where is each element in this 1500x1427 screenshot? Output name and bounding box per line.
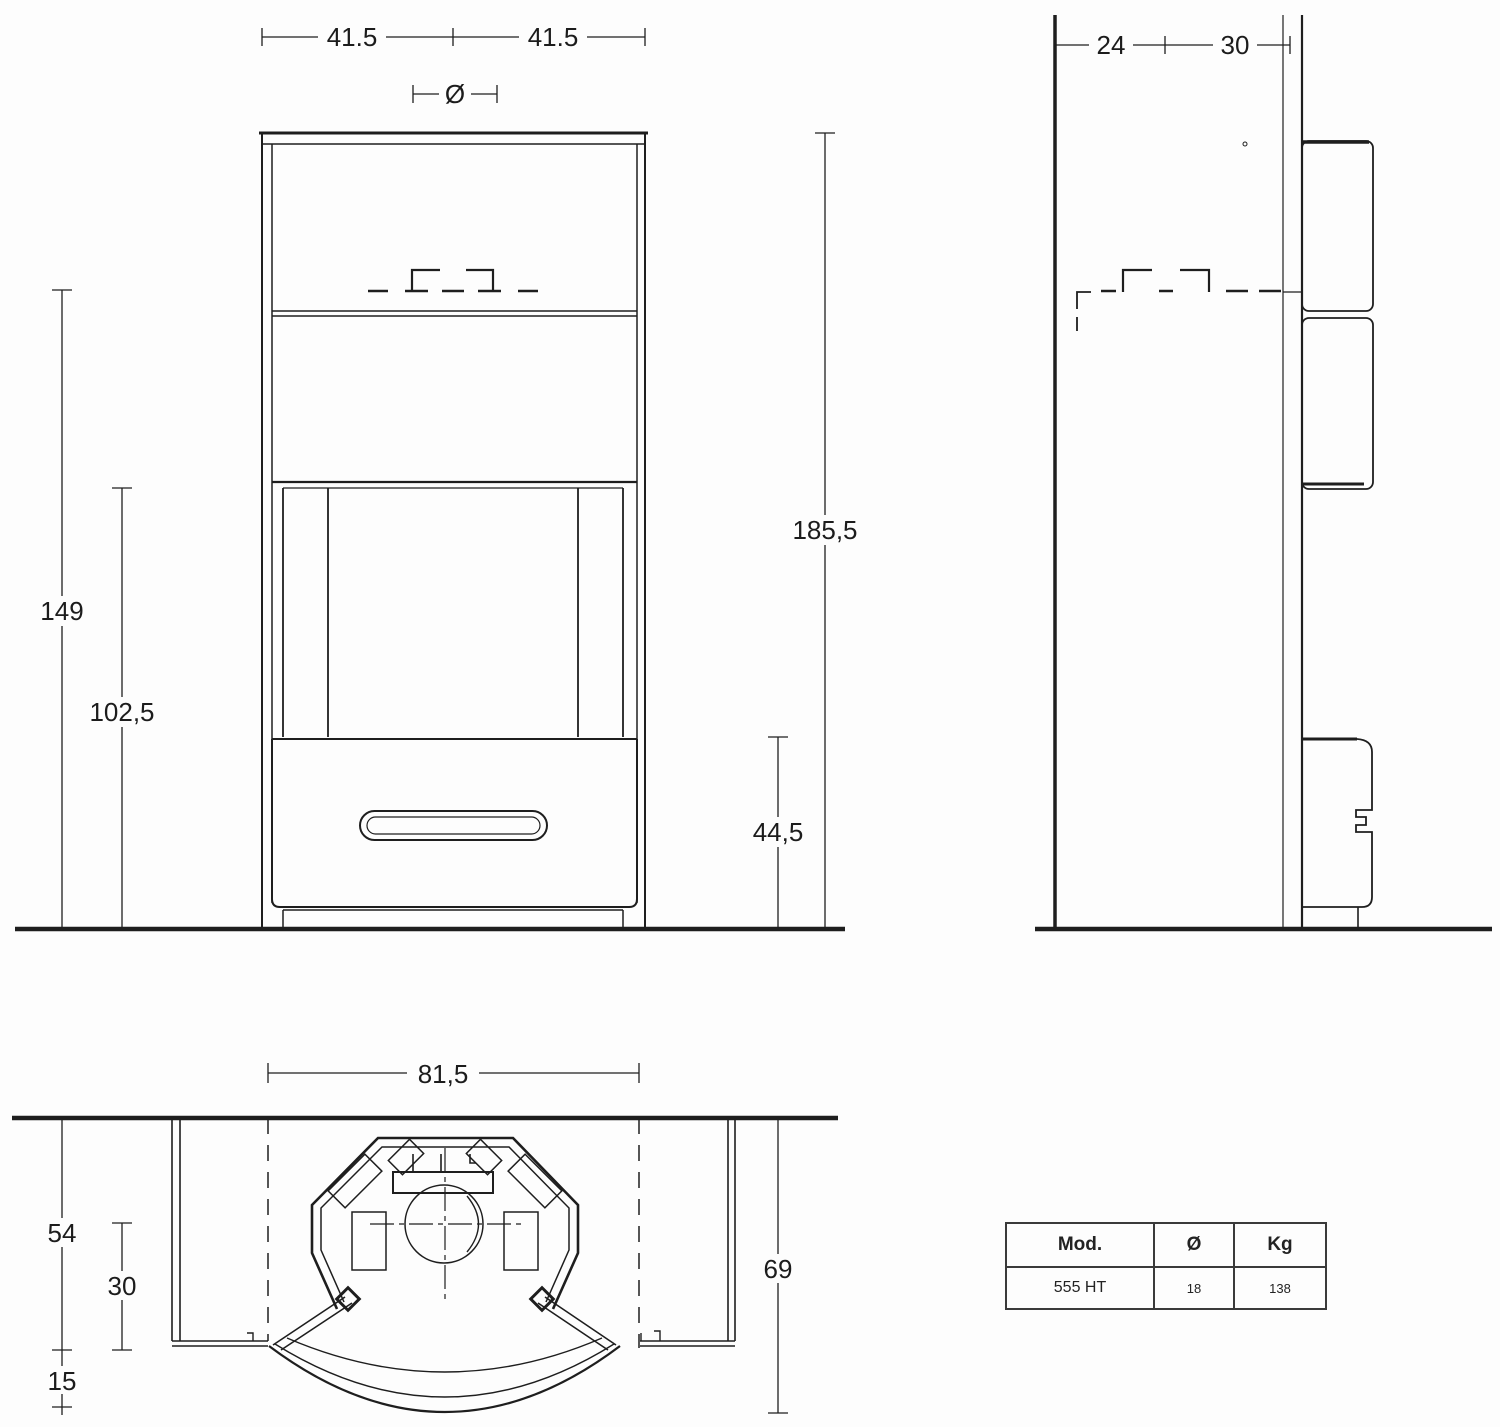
drawer-handle: [360, 811, 547, 840]
dim-label-top-left: 41.5: [327, 22, 378, 52]
front-flue-dashed-symbol: [368, 270, 538, 292]
spec-table-header-mod: Mod.: [1007, 1224, 1155, 1268]
spec-table-header-diameter: Ø: [1155, 1224, 1235, 1268]
plan-side-panel-right: [640, 1118, 735, 1346]
plan-door-frame-diagonals: [273, 1297, 616, 1350]
plan-label-masks: [37, 1059, 804, 1394]
dim-label-bow-projection: 15: [48, 1366, 77, 1396]
front-pillar-left: [283, 488, 328, 737]
drawer-handle-inner: [367, 817, 540, 834]
dim-label-recess-depth: 30: [108, 1271, 137, 1301]
dim-label-width: 81,5: [418, 1059, 469, 1089]
plan-bow-front: [269, 1338, 620, 1412]
side-drawer-box: [1302, 739, 1372, 907]
spec-table-header-kg: Kg: [1235, 1224, 1325, 1268]
drawing-svg: 41.5 41.5 Ø 149 102,5 185,5 44,5: [0, 0, 1500, 1427]
dim-label-flue-to-front: 30: [1221, 30, 1250, 60]
front-view: 41.5 41.5 Ø 149 102,5 185,5 44,5: [15, 22, 861, 929]
dim-label-total-depth: 69: [764, 1254, 793, 1284]
dim-label-base-height: 44,5: [753, 817, 804, 847]
spec-table: Mod. Ø Kg 555 HT 18 138: [1005, 1222, 1327, 1310]
dim-label-total-height: 185,5: [792, 515, 857, 545]
dim-label-top-right: 41.5: [528, 22, 579, 52]
spec-table-cell-kg: 138: [1235, 1268, 1325, 1308]
technical-drawing-sheet: 41.5 41.5 Ø 149 102,5 185,5 44,5: [0, 0, 1500, 1427]
dim-label-body-height: 149: [40, 596, 83, 626]
front-panel-divider-upper: [272, 311, 637, 316]
side-mid-box: [1302, 318, 1373, 489]
side-top-box: [1302, 141, 1373, 311]
side-dot-mark: [1243, 142, 1247, 146]
dim-label-flue-diameter: Ø: [445, 79, 465, 109]
side-view: 24 30: [1035, 15, 1492, 929]
front-drawer-panel: [272, 739, 637, 907]
plan-flue-collar: [393, 1172, 493, 1193]
dim-label-wall-to-flue: 24: [1097, 30, 1126, 60]
front-label-masks: [36, 22, 861, 847]
dim-label-opening-height: 102,5: [89, 697, 154, 727]
dim-label-side-panel-depth: 54: [48, 1218, 77, 1248]
front-casing-outer: [262, 133, 645, 929]
front-plinth: [283, 910, 623, 928]
front-pillar-right: [578, 488, 623, 737]
front-casing-inner: [272, 144, 637, 903]
plan-view: 81,5 54 30 15 69: [12, 1059, 838, 1415]
side-flue-dashed-symbol: [1077, 270, 1281, 331]
spec-table-cell-diameter: 18: [1155, 1268, 1235, 1308]
spec-table-cell-model: 555 HT: [1007, 1268, 1155, 1308]
plan-side-panel-left: [172, 1118, 268, 1346]
front-dimensions: [52, 28, 835, 929]
